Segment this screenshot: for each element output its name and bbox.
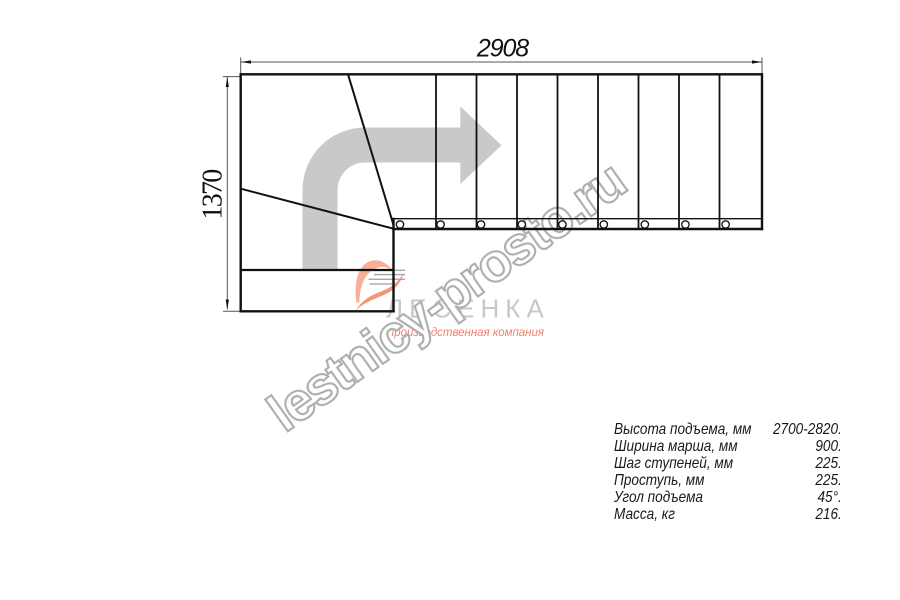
svg-text:1370: 1370	[198, 170, 229, 220]
svg-text:2908: 2908	[476, 35, 529, 63]
